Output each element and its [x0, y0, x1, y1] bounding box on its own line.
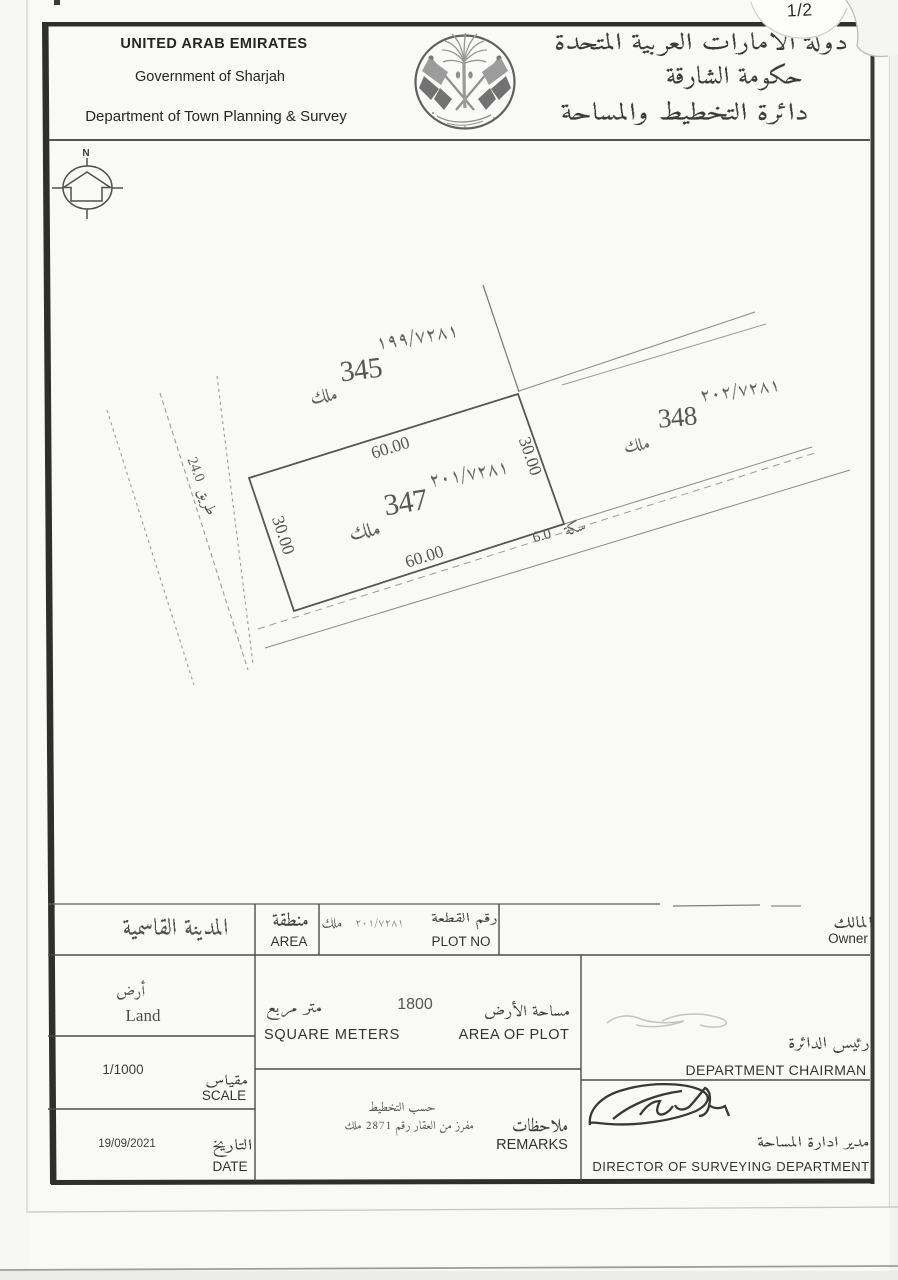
- svg-text:1/2: 1/2: [786, 0, 813, 21]
- svg-text:UNITED ARAB EMIRATES: UNITED ARAB EMIRATES: [120, 36, 307, 52]
- svg-text:Owner: Owner: [828, 931, 868, 946]
- svg-text:1800: 1800: [397, 996, 433, 1013]
- svg-text:SQUARE METERS: SQUARE METERS: [264, 1027, 400, 1043]
- svg-text:REMARKS: REMARKS: [496, 1137, 568, 1153]
- svg-text:347: 347: [381, 483, 430, 522]
- svg-text:345: 345: [338, 352, 384, 389]
- svg-text:Government of Sharjah: Government of Sharjah: [135, 69, 285, 85]
- svg-text:Department of Town Planning &: Department of Town Planning & Survey: [85, 108, 347, 125]
- svg-text:Land: Land: [126, 1006, 161, 1025]
- svg-text:DIRECTOR OF SURVEYING DEPARTME: DIRECTOR OF SURVEYING DEPARTMENT: [592, 1159, 869, 1174]
- svg-text:19/09/2021: 19/09/2021: [98, 1138, 156, 1150]
- svg-text:PLOT NO: PLOT NO: [431, 934, 490, 949]
- svg-text:AREA OF PLOT: AREA OF PLOT: [459, 1027, 570, 1043]
- svg-text:SCALE: SCALE: [202, 1088, 246, 1103]
- svg-text:DEPARTMENT CHAIRMAN: DEPARTMENT CHAIRMAN: [685, 1062, 866, 1078]
- svg-text:1/1000: 1/1000: [102, 1062, 143, 1077]
- svg-text:348: 348: [656, 400, 697, 433]
- svg-text:N: N: [82, 148, 89, 159]
- svg-text:AREA: AREA: [271, 934, 308, 949]
- svg-text:DATE: DATE: [212, 1159, 247, 1174]
